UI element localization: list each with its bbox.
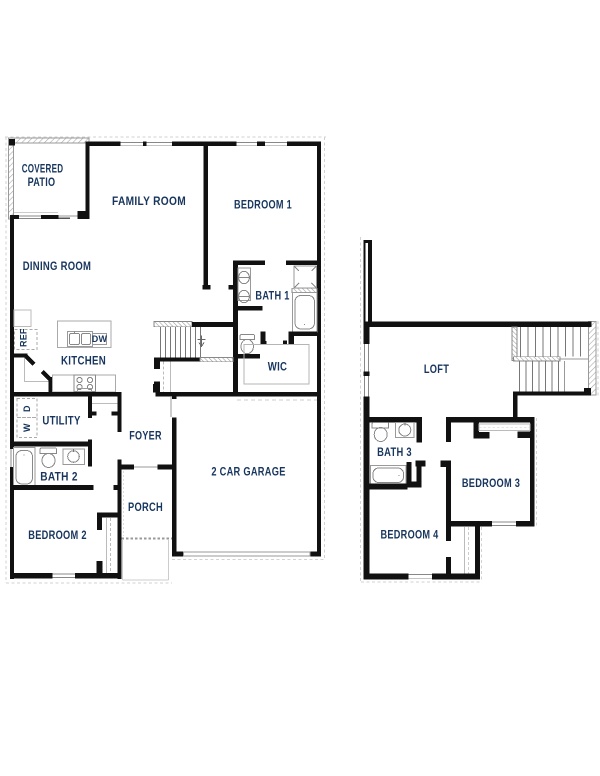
svg-text:BEDROOM 4: BEDROOM 4 [381,527,439,541]
svg-text:LOFT: LOFT [424,362,450,376]
svg-text:PORCH: PORCH [128,500,163,514]
svg-text:DINING ROOM: DINING ROOM [23,259,92,273]
svg-text:W: W [22,423,32,432]
svg-text:BEDROOM 3: BEDROOM 3 [462,476,520,490]
svg-text:BEDROOM 2: BEDROOM 2 [28,528,87,542]
svg-text:KITCHEN: KITCHEN [61,354,106,368]
svg-text:UTILITY: UTILITY [42,414,80,428]
svg-text:FAMILY ROOM: FAMILY ROOM [112,194,186,208]
svg-text:2 CAR GARAGE: 2 CAR GARAGE [211,464,285,478]
svg-text:FOYER: FOYER [129,429,162,443]
svg-text:BATH 2: BATH 2 [40,469,78,483]
svg-text:COVERED: COVERED [22,161,64,175]
svg-text:BATH 1: BATH 1 [255,289,289,303]
svg-text:BATH 3: BATH 3 [377,445,412,459]
svg-text:BEDROOM 1: BEDROOM 1 [234,197,292,211]
svg-text:PATIO: PATIO [28,175,56,189]
svg-text:DW: DW [92,334,108,344]
svg-text:REF: REF [19,328,29,347]
svg-text:WIC: WIC [268,360,288,374]
svg-text:D: D [22,405,32,412]
